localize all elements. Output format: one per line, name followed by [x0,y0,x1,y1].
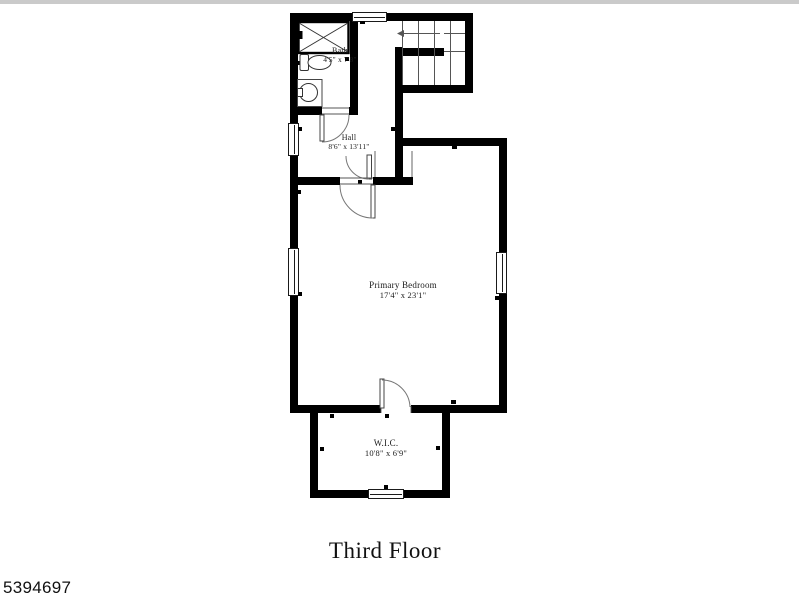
hall-door-icon [346,151,412,179]
bath-room-dimensions: 4'5" x 7'8" [323,55,357,64]
wic-room-name: W.I.C. [365,438,407,448]
primary-bedroom-room-label: Primary Bedroom 17'4" x 23'1" [369,280,437,300]
hall-room-dimensions: 8'6" x 13'11" [328,142,369,151]
sink-icon [298,80,323,107]
staircase-icon [403,21,466,85]
wic-room-label: W.I.C. 10'8" x 6'9" [365,438,407,458]
bath-room-label: Bath 4'5" x 7'8" [323,46,357,64]
floor-title: Third Floor [329,538,441,564]
floor-plan-canvas: Bath 4'5" x 7'8" Hall 8'6" x 13'11" Prim… [0,0,799,600]
bedroom-door-icon [340,178,375,218]
bath-room-name: Bath [323,46,357,55]
wic-door-icon [380,379,411,413]
primary-bedroom-room-dimensions: 17'4" x 23'1" [369,290,437,300]
hall-room-name: Hall [328,133,369,142]
wic-room-dimensions: 10'8" x 6'9" [365,448,407,458]
plan-detail-layer [0,0,799,600]
primary-bedroom-room-name: Primary Bedroom [369,280,437,290]
hall-room-label: Hall 8'6" x 13'11" [328,133,369,151]
listing-id: 5394697 [3,578,71,598]
